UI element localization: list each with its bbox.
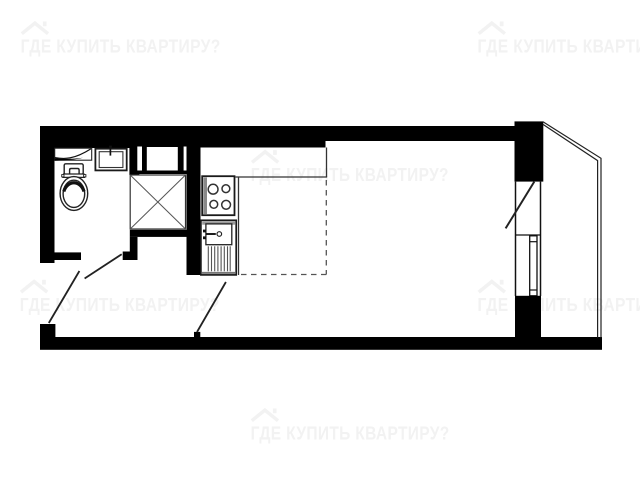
svg-text:ГДЕ КУПИТЬ КВАРТИРУ?: ГДЕ КУПИТЬ КВАРТИРУ?: [21, 36, 221, 56]
svg-text:ГДЕ КУПИТЬ КВАРТИРУ?: ГДЕ КУПИТЬ КВАРТИРУ?: [20, 295, 220, 315]
svg-text:ГДЕ КУПИТЬ КВАРТИРУ?: ГДЕ КУПИТЬ КВАРТИРУ?: [251, 165, 449, 185]
svg-text:ГДЕ КУПИТЬ КВАРТИРУ?: ГДЕ КУПИТЬ КВАРТИРУ?: [478, 36, 640, 56]
svg-text:ГДЕ КУПИТЬ КВАРТИРУ?: ГДЕ КУПИТЬ КВАРТИРУ?: [251, 423, 450, 443]
svg-text:ГДЕ КУПИТЬ КВАРТИРУ?: ГДЕ КУПИТЬ КВАРТИРУ?: [478, 295, 640, 315]
